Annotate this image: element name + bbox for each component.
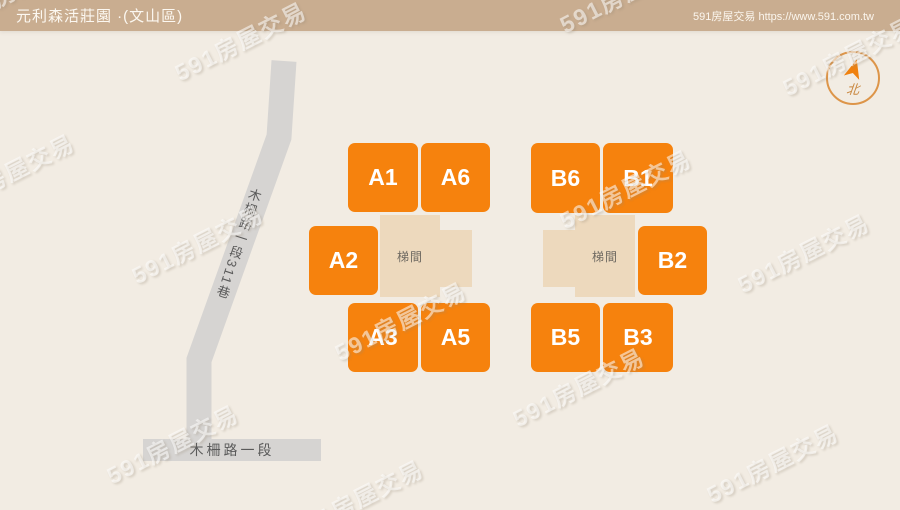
north-compass: 北 bbox=[826, 51, 880, 105]
stairwell-a-label: 梯間 bbox=[397, 248, 423, 265]
unit-block-b2[interactable]: B2 bbox=[638, 226, 707, 295]
stairwell-b: 梯間 bbox=[575, 215, 635, 297]
header-bar: 元利森活莊園 ·(文山區) 591房屋交易 https://www.591.co… bbox=[0, 0, 900, 31]
unit-block-a5[interactable]: A5 bbox=[421, 303, 490, 372]
unit-block-b6[interactable]: B6 bbox=[531, 143, 600, 213]
page-title: 元利森活莊園 ·(文山區) bbox=[0, 5, 183, 26]
unit-block-b3[interactable]: B3 bbox=[603, 303, 673, 372]
stairwell-b-extension bbox=[543, 230, 575, 287]
main-road-label: 木柵路一段 bbox=[143, 439, 321, 461]
stairwell-a-extension bbox=[440, 230, 472, 287]
unit-block-b5[interactable]: B5 bbox=[531, 303, 600, 372]
unit-block-a2[interactable]: A2 bbox=[309, 226, 378, 295]
site-plan-page: 元利森活莊園 ·(文山區) 591房屋交易 https://www.591.co… bbox=[0, 0, 900, 510]
north-label: 北 bbox=[827, 79, 879, 98]
unit-block-a1[interactable]: A1 bbox=[348, 143, 418, 212]
unit-block-a6[interactable]: A6 bbox=[421, 143, 490, 212]
unit-block-a3[interactable]: A3 bbox=[348, 303, 418, 372]
stairwell-a: 梯間 bbox=[380, 215, 440, 297]
site-credit: 591房屋交易 https://www.591.com.tw bbox=[693, 8, 900, 24]
unit-block-b1[interactable]: B1 bbox=[603, 143, 673, 213]
stairwell-b-label: 梯間 bbox=[592, 248, 618, 265]
